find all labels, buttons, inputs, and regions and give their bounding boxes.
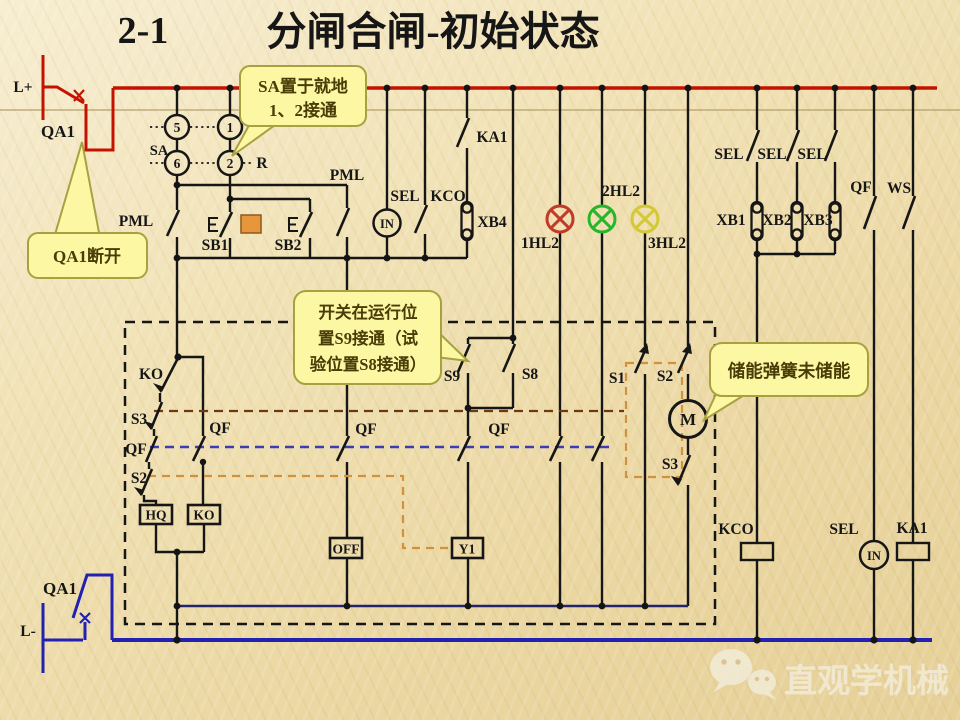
kco-mid-label: KCO (430, 188, 465, 205)
junction-dot (465, 405, 472, 412)
junction-dot (557, 85, 564, 92)
contact-blades (141, 118, 915, 495)
sel-c-label: SEL (797, 146, 826, 163)
page-title: 分闸合闸-初始状态 (266, 9, 599, 54)
coil-off-label: OFF (333, 542, 360, 557)
s3-right-label: S3 (662, 456, 679, 473)
callout-position-line1: 开关在运行位 (319, 302, 419, 322)
coil-kco-box (741, 543, 773, 560)
contact-kco-blade (415, 205, 427, 233)
pml-left-label: PML (119, 213, 153, 230)
sa-terminal-2-label: 2 (227, 156, 234, 171)
junction-dot (174, 85, 181, 92)
qa1-bottom-label: QA1 (43, 579, 77, 598)
arrow-ko (153, 383, 164, 393)
xb3-label: XB3 (803, 212, 833, 229)
fuse-xb1 (752, 202, 763, 240)
junction-dot (599, 85, 606, 92)
junction-dot (557, 603, 564, 610)
junction-dot (909, 636, 916, 643)
junction-dot (344, 255, 351, 262)
qf-left-label: QF (125, 441, 147, 458)
callout-sa-line1: SA置于就地 (258, 76, 348, 96)
junction-dot (200, 459, 206, 465)
sb1-actuator (209, 218, 218, 231)
s3-left-label: S3 (131, 411, 148, 428)
junction-dot (754, 251, 761, 258)
pushbutton-sb2-blade (300, 212, 312, 237)
junction-dot (753, 636, 760, 643)
contact-pml-left-blade (167, 210, 179, 236)
coil-ko-label: KO (193, 508, 214, 523)
hl2-label: 2HL2 (602, 183, 640, 200)
watermark: 直观学机械 (710, 649, 949, 700)
callout-spring-line1: 储能弹簧未储能 (728, 361, 851, 381)
junction-dot (510, 85, 517, 92)
callout-qa1-line1: QA1断开 (53, 246, 121, 266)
junction-dot (871, 85, 878, 92)
contact-qf-branch-blade (193, 436, 205, 461)
qf-top-label: QF (850, 179, 872, 196)
contact-pml-right-blade (337, 208, 349, 236)
callout-sa-line2: 1、2接通 (269, 100, 337, 120)
junction-dot (870, 636, 877, 643)
s8-label: S8 (522, 366, 539, 383)
contact-qf-off-blade (337, 436, 349, 461)
xb4-label: XB4 (477, 214, 507, 231)
callout-qa1-tail (54, 142, 100, 238)
lamp-1hl2 (547, 206, 573, 232)
qf-y1-label: QF (488, 421, 510, 438)
qa1-top-label: QA1 (41, 122, 75, 141)
ws-label: WS (887, 180, 911, 197)
callout-position-line2: 置S9接通（试 (318, 328, 418, 348)
fuse-xb4 (462, 202, 473, 240)
junction-dot (510, 335, 517, 342)
sb2-actuator (289, 218, 298, 231)
kco-coil-label: KCO (718, 521, 753, 538)
contact-qf-lamp1-blade (550, 436, 562, 461)
callout-position-line3: 验位置S8接通） (310, 354, 426, 374)
contact-qf-left-blade (146, 436, 157, 462)
sa-terminal-5-label: 5 (174, 120, 181, 135)
coil-hq-label: HQ (145, 508, 166, 523)
relay-in-bottom-label: IN (867, 549, 881, 563)
coil-boxes (140, 505, 929, 560)
pml-right-label: PML (330, 167, 364, 184)
junction-dot (227, 85, 234, 92)
xb1-label: XB1 (716, 212, 745, 229)
sa-terminal-6-label: 6 (174, 156, 181, 171)
watermark-text: 直观学机械 (784, 662, 949, 700)
highlight-square (241, 215, 261, 233)
callout-spring-tail (704, 394, 746, 420)
lamp-3hl2 (632, 206, 658, 232)
junction-dot (173, 636, 180, 643)
qf-off-label: QF (355, 421, 377, 438)
junction-dot (685, 85, 692, 92)
junction-dot (642, 603, 649, 610)
fuse-xb2 (792, 202, 803, 240)
junction-dot (794, 85, 801, 92)
junction-dot (794, 251, 801, 258)
motor-label: M (680, 410, 696, 429)
junction-dot (384, 255, 391, 262)
wechat-icon (710, 649, 776, 700)
relay-in-top-label: IN (380, 217, 394, 231)
s9-label: S9 (444, 368, 461, 385)
negative-rail-label: L- (20, 623, 36, 640)
junction-dot (174, 603, 181, 610)
junction-dot (832, 85, 839, 92)
junction-dot (227, 196, 234, 203)
wire-branch-b (178, 357, 203, 505)
pushbutton-sb1-blade (220, 212, 232, 237)
contact-s8-blade (503, 344, 515, 372)
junction-dot (599, 603, 606, 610)
wire-s9s8-loop (468, 88, 513, 606)
sel-a-label: SEL (714, 146, 743, 163)
contact-sel3-blade (825, 130, 837, 161)
coil-y1-label: Y1 (459, 542, 476, 557)
junction-dot (754, 85, 761, 92)
sel-b-label: SEL (757, 146, 786, 163)
junction-dot (464, 85, 471, 92)
schematic-canvas: 2-1 分闸合闸-初始状态 (0, 0, 960, 720)
sb2-label: SB2 (275, 237, 302, 254)
ko-contact-label: KO (139, 366, 163, 383)
junction-dot (174, 182, 181, 189)
qf-branch-label: QF (209, 420, 231, 437)
lamp-2hl2 (589, 206, 615, 232)
s2-left-label: S2 (131, 470, 148, 487)
contact-ka1-blade (457, 118, 469, 147)
ka1-coil-label: KA1 (897, 520, 928, 537)
junction-dot (174, 549, 181, 556)
s1-label: S1 (609, 370, 625, 387)
junction-dot (465, 603, 472, 610)
title-number: 2-1 (118, 10, 169, 52)
junction-dot (384, 85, 391, 92)
junction-dot (344, 603, 351, 610)
junction-dot (422, 255, 429, 262)
hl3-label: 3HL2 (648, 235, 686, 252)
contact-qf-lamp2-blade (592, 436, 604, 461)
ka1-top-label: KA1 (477, 129, 508, 146)
contact-qf-y1-blade (458, 436, 470, 461)
sel-mid-label: SEL (390, 188, 419, 205)
junction-dot (174, 353, 181, 360)
junction-dot (910, 85, 917, 92)
junction-dot (174, 255, 181, 262)
contact-ko-blade (161, 358, 178, 391)
sel-bottom-label: SEL (829, 521, 858, 538)
contact-qf-top-blade (864, 196, 876, 229)
coil-ka1-box (897, 543, 929, 560)
junction-dot (642, 85, 649, 92)
wire-cross-rails (177, 185, 347, 199)
sa-terminal-1-label: 1 (227, 120, 234, 135)
sb1-label: SB1 (202, 237, 229, 254)
contact-ws-blade (903, 196, 915, 229)
positive-rail-label: L+ (13, 79, 32, 96)
junction-dot (422, 85, 429, 92)
sa-label: SA (150, 143, 169, 159)
callout-spring (704, 343, 868, 420)
hl1-label: 1HL2 (521, 235, 559, 252)
r-label: R (256, 155, 268, 172)
s2-mid-label: S2 (657, 368, 674, 385)
xb2-label: XB2 (762, 212, 792, 229)
